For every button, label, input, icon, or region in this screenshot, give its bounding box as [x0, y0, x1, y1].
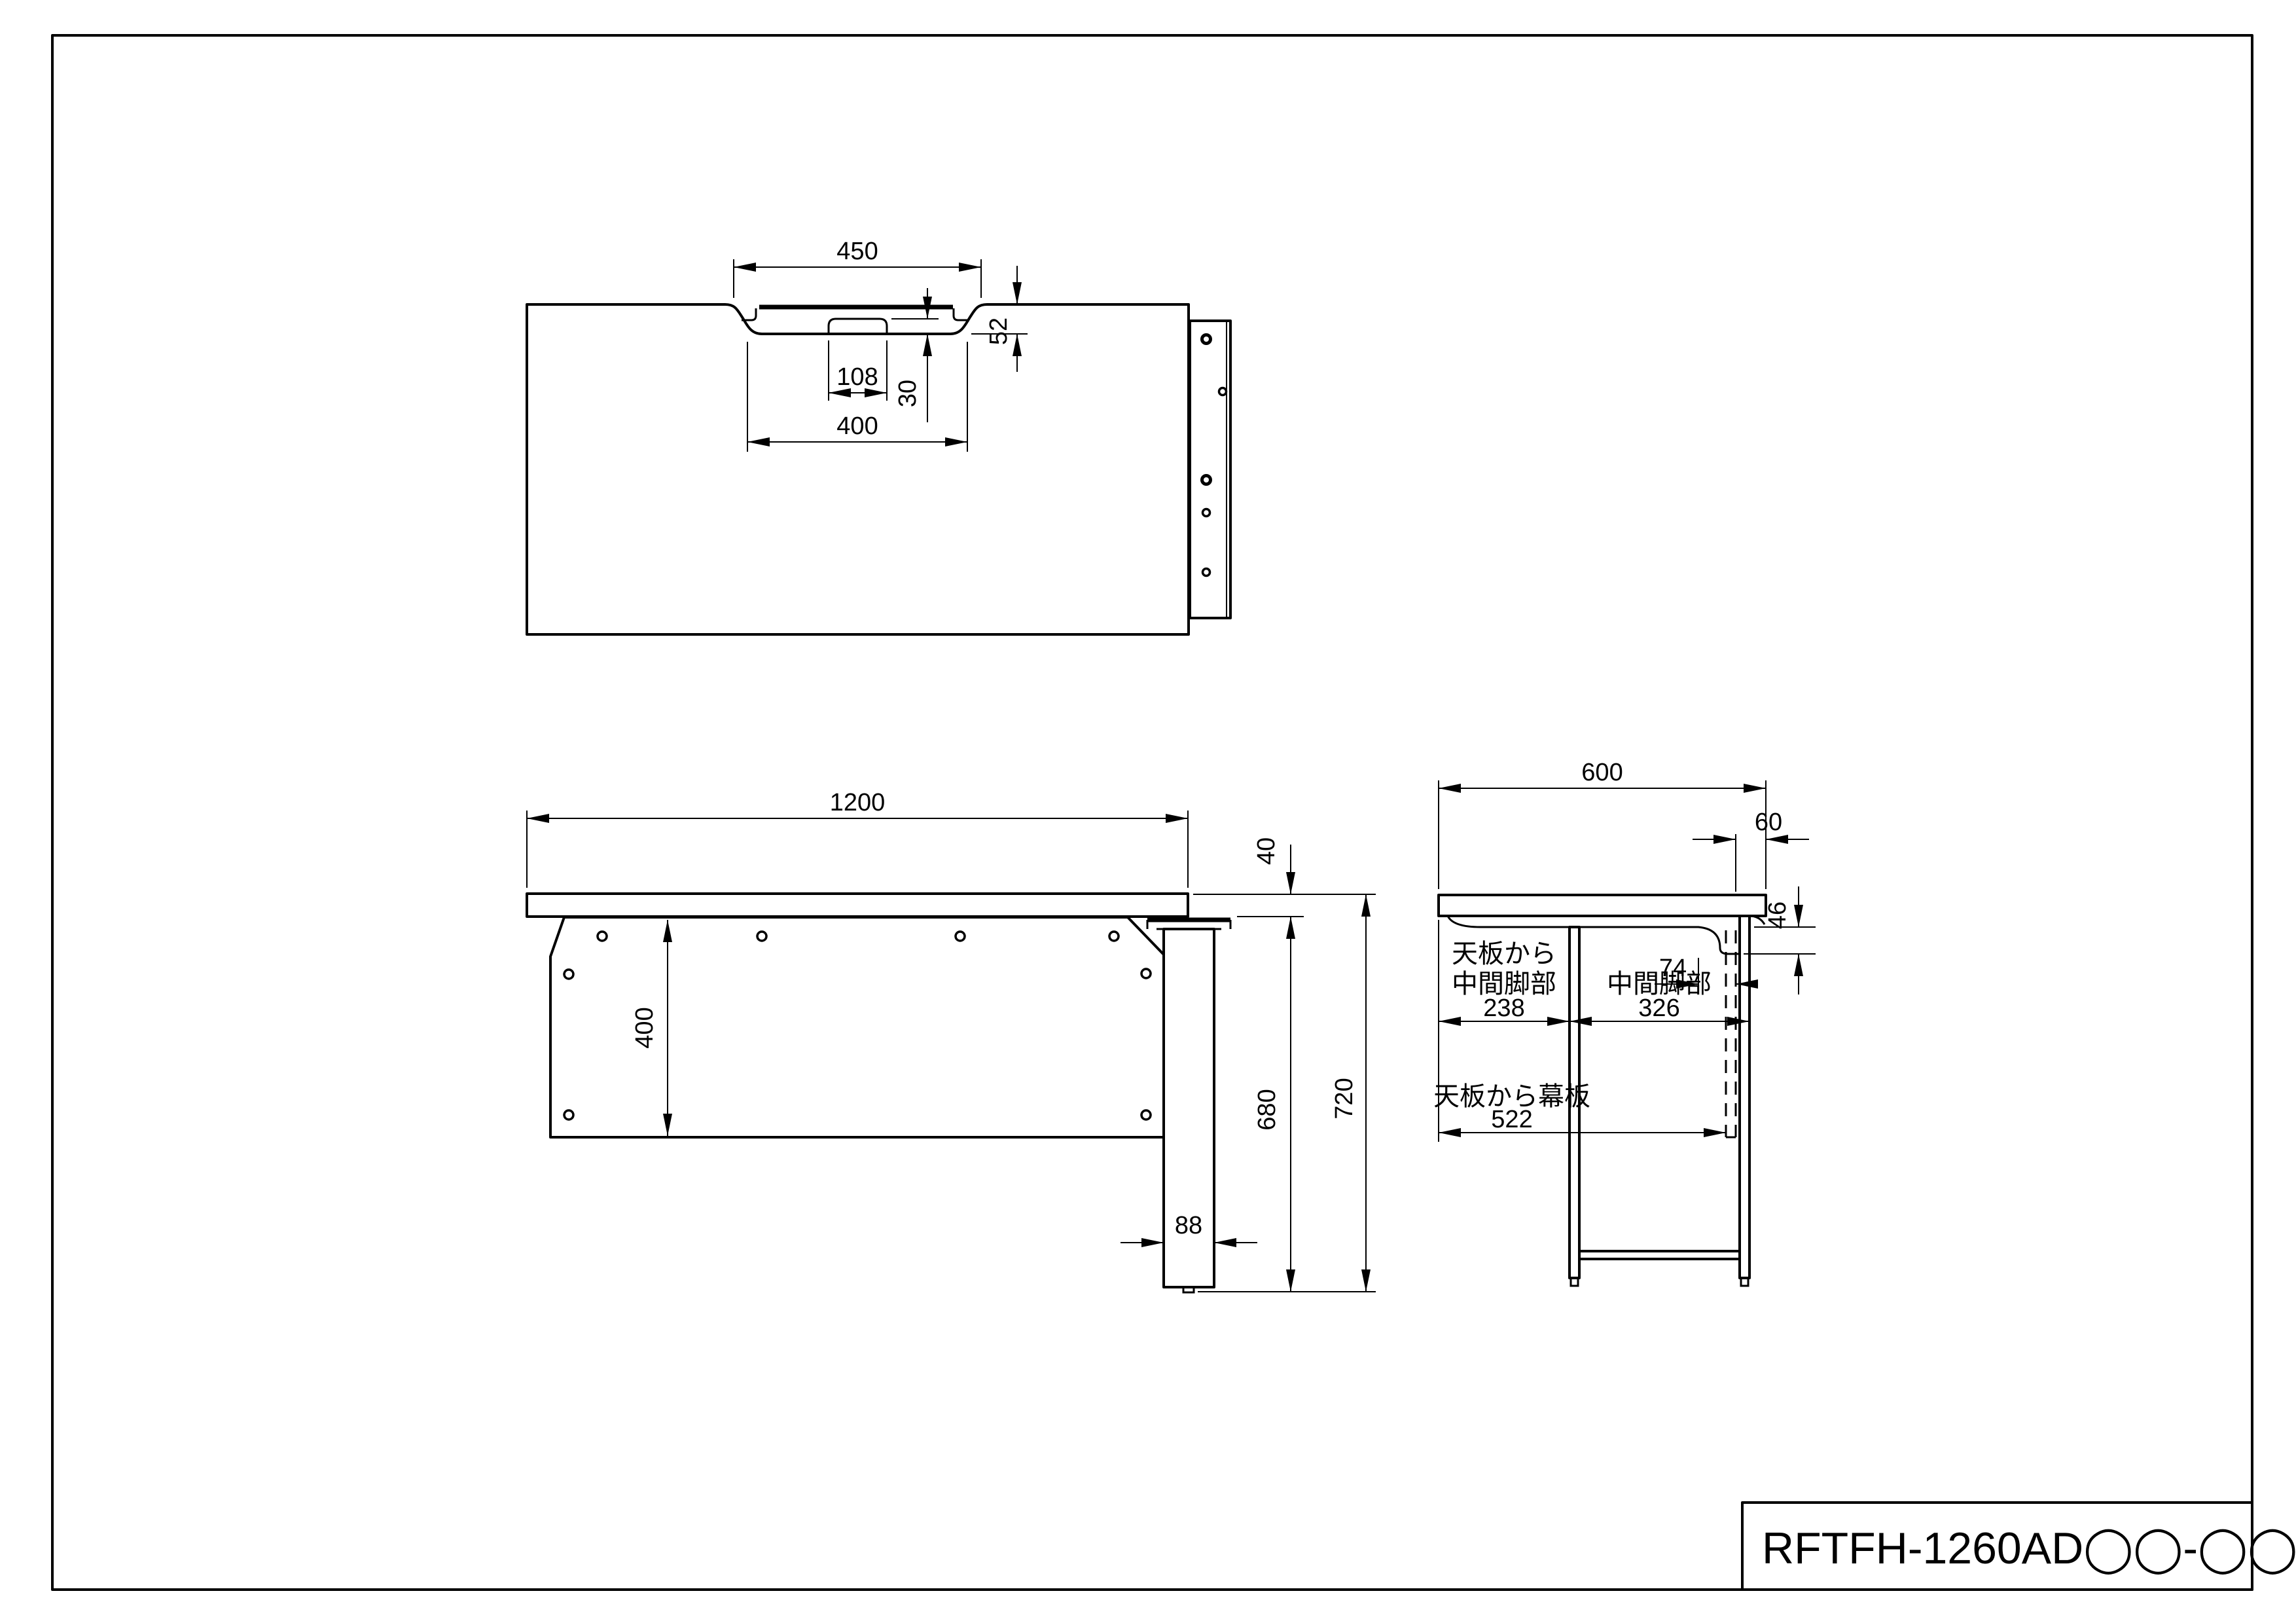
- dim-arrow: [1794, 905, 1803, 927]
- dim-label: 326: [1638, 994, 1679, 1022]
- plate-bolt-hole-center: [1204, 337, 1209, 342]
- leg-adjuster-foot: [1183, 1287, 1194, 1292]
- dim-label: 108: [836, 363, 878, 391]
- dim-arrow: [959, 263, 981, 272]
- drawing-sheet: 450 52 108 30: [0, 0, 2296, 1623]
- dim-arrow: [1713, 835, 1736, 844]
- dim-arrow: [734, 263, 756, 272]
- panel-screw-hole: [956, 932, 965, 941]
- dim-label: 238: [1483, 994, 1524, 1022]
- dim-arrow: [1286, 917, 1295, 939]
- plate-bolt-hole-center: [1204, 477, 1209, 483]
- bottom-stretcher: [1579, 1251, 1740, 1259]
- dim-depth: 600: [1439, 759, 1766, 889]
- dim-arrow: [1439, 1128, 1461, 1137]
- dim-arrow: [1286, 872, 1295, 894]
- dim-arrow: [1013, 282, 1022, 304]
- panel-screw-hole: [1141, 969, 1151, 978]
- dim-arrow: [1361, 894, 1371, 917]
- plate-screw-hole: [1203, 509, 1210, 517]
- dim-label: 600: [1581, 759, 1623, 786]
- panel-screw-hole: [1109, 932, 1119, 941]
- dim-arrow: [1794, 954, 1803, 976]
- panel-screw-hole: [757, 932, 766, 941]
- dim-arrow: [1439, 1017, 1461, 1026]
- dim-label: 680: [1253, 1089, 1281, 1130]
- dim-label: 400: [631, 1007, 658, 1048]
- dim-total-height: 720: [1331, 894, 1371, 1292]
- page-border: [52, 35, 2252, 1590]
- dim-label: 1200: [830, 789, 886, 816]
- desktop-plan-outline: [527, 304, 1189, 634]
- dim-arrow: [1166, 814, 1188, 823]
- panel-screw-hole: [1141, 1110, 1151, 1120]
- front-view: 1200 40 680 720 400: [527, 789, 1376, 1292]
- dim-arrow: [1286, 1269, 1295, 1292]
- dim-arrow: [1439, 784, 1461, 793]
- desktop-side: [1439, 895, 1766, 916]
- model-number: RFTFH-1260AD◯◯-◯◯: [1762, 1523, 2296, 1575]
- dim-rear-offset: 60: [1693, 809, 1809, 892]
- dim-label: 52: [985, 318, 1013, 345]
- title-block: RFTFH-1260AD◯◯-◯◯: [1742, 1503, 2296, 1590]
- panel-screw-hole: [564, 1110, 573, 1120]
- side-view: 600 60 46 74: [1433, 759, 1816, 1286]
- dim-label: 30: [894, 380, 922, 407]
- dim-recess-opening: 450: [734, 238, 981, 298]
- dim-width: 1200: [527, 789, 1188, 888]
- dim-arrow: [1141, 1238, 1164, 1247]
- dim-label: 46: [1764, 902, 1791, 929]
- dim-label: 400: [836, 412, 878, 440]
- dim-label: 40: [1253, 837, 1280, 865]
- dim-label: 60: [1755, 809, 1782, 836]
- plate-screw-hole: [1219, 388, 1227, 395]
- cable-tray-lid-right-step: [954, 308, 969, 320]
- dim-arrow: [1214, 1238, 1236, 1247]
- cad-drawing: 450 52 108 30: [0, 0, 2296, 1623]
- dim-label: 522: [1491, 1106, 1532, 1133]
- dim-label: 450: [836, 238, 878, 265]
- dim-arrow: [1361, 1269, 1371, 1292]
- dim-label: 720: [1331, 1078, 1358, 1119]
- rear-leg-side: [1740, 916, 1749, 1278]
- panel-screw-hole: [564, 970, 573, 979]
- cable-tray-latch-tab: [829, 319, 887, 334]
- dim-arrow: [527, 814, 549, 823]
- plate-screw-hole: [1203, 569, 1210, 576]
- panel-screw-hole: [598, 932, 607, 941]
- desktop-front: [527, 894, 1188, 917]
- dim-arrow: [1766, 835, 1788, 844]
- dim-arrow: [1547, 1017, 1570, 1026]
- dim-top-thickness: 40: [1253, 837, 1295, 894]
- dim-arrow: [1744, 784, 1766, 793]
- dim-label: 88: [1175, 1212, 1202, 1239]
- dim-label-jp: 天板から: [1452, 939, 1556, 968]
- dim-underside-height: 680: [1253, 917, 1295, 1292]
- top-view: 450 52 108 30: [527, 238, 1230, 634]
- dim-arrow: [1704, 1128, 1726, 1137]
